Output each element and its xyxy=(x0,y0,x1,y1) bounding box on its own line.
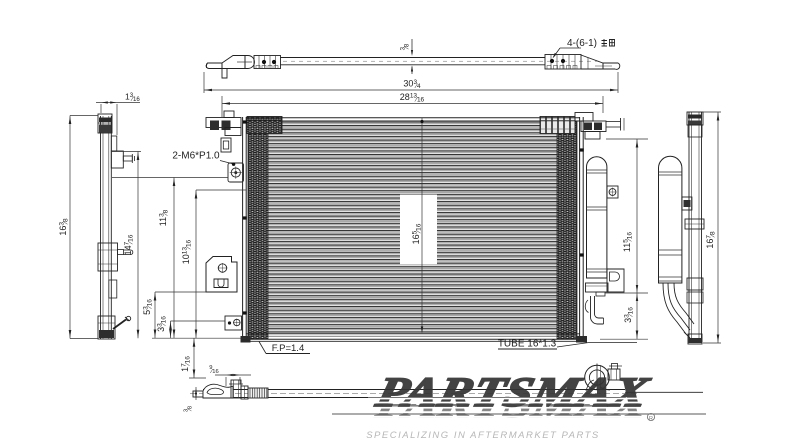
svg-text:PARTSMAX: PARTSMAX xyxy=(371,381,654,427)
svg-text:R: R xyxy=(649,416,653,422)
svg-text:SPECIALIZING IN AFTERMARKET PA: SPECIALIZING IN AFTERMARKET PARTS xyxy=(366,430,600,441)
svg-text:TUBE 16*1.3: TUBE 16*1.3 xyxy=(498,339,557,350)
svg-text:F.P=1.4: F.P=1.4 xyxy=(272,343,304,354)
svg-text:4-(6-1): 4-(6-1) xyxy=(567,38,597,49)
svg-text:2-M6*P1.0: 2-M6*P1.0 xyxy=(172,151,220,162)
